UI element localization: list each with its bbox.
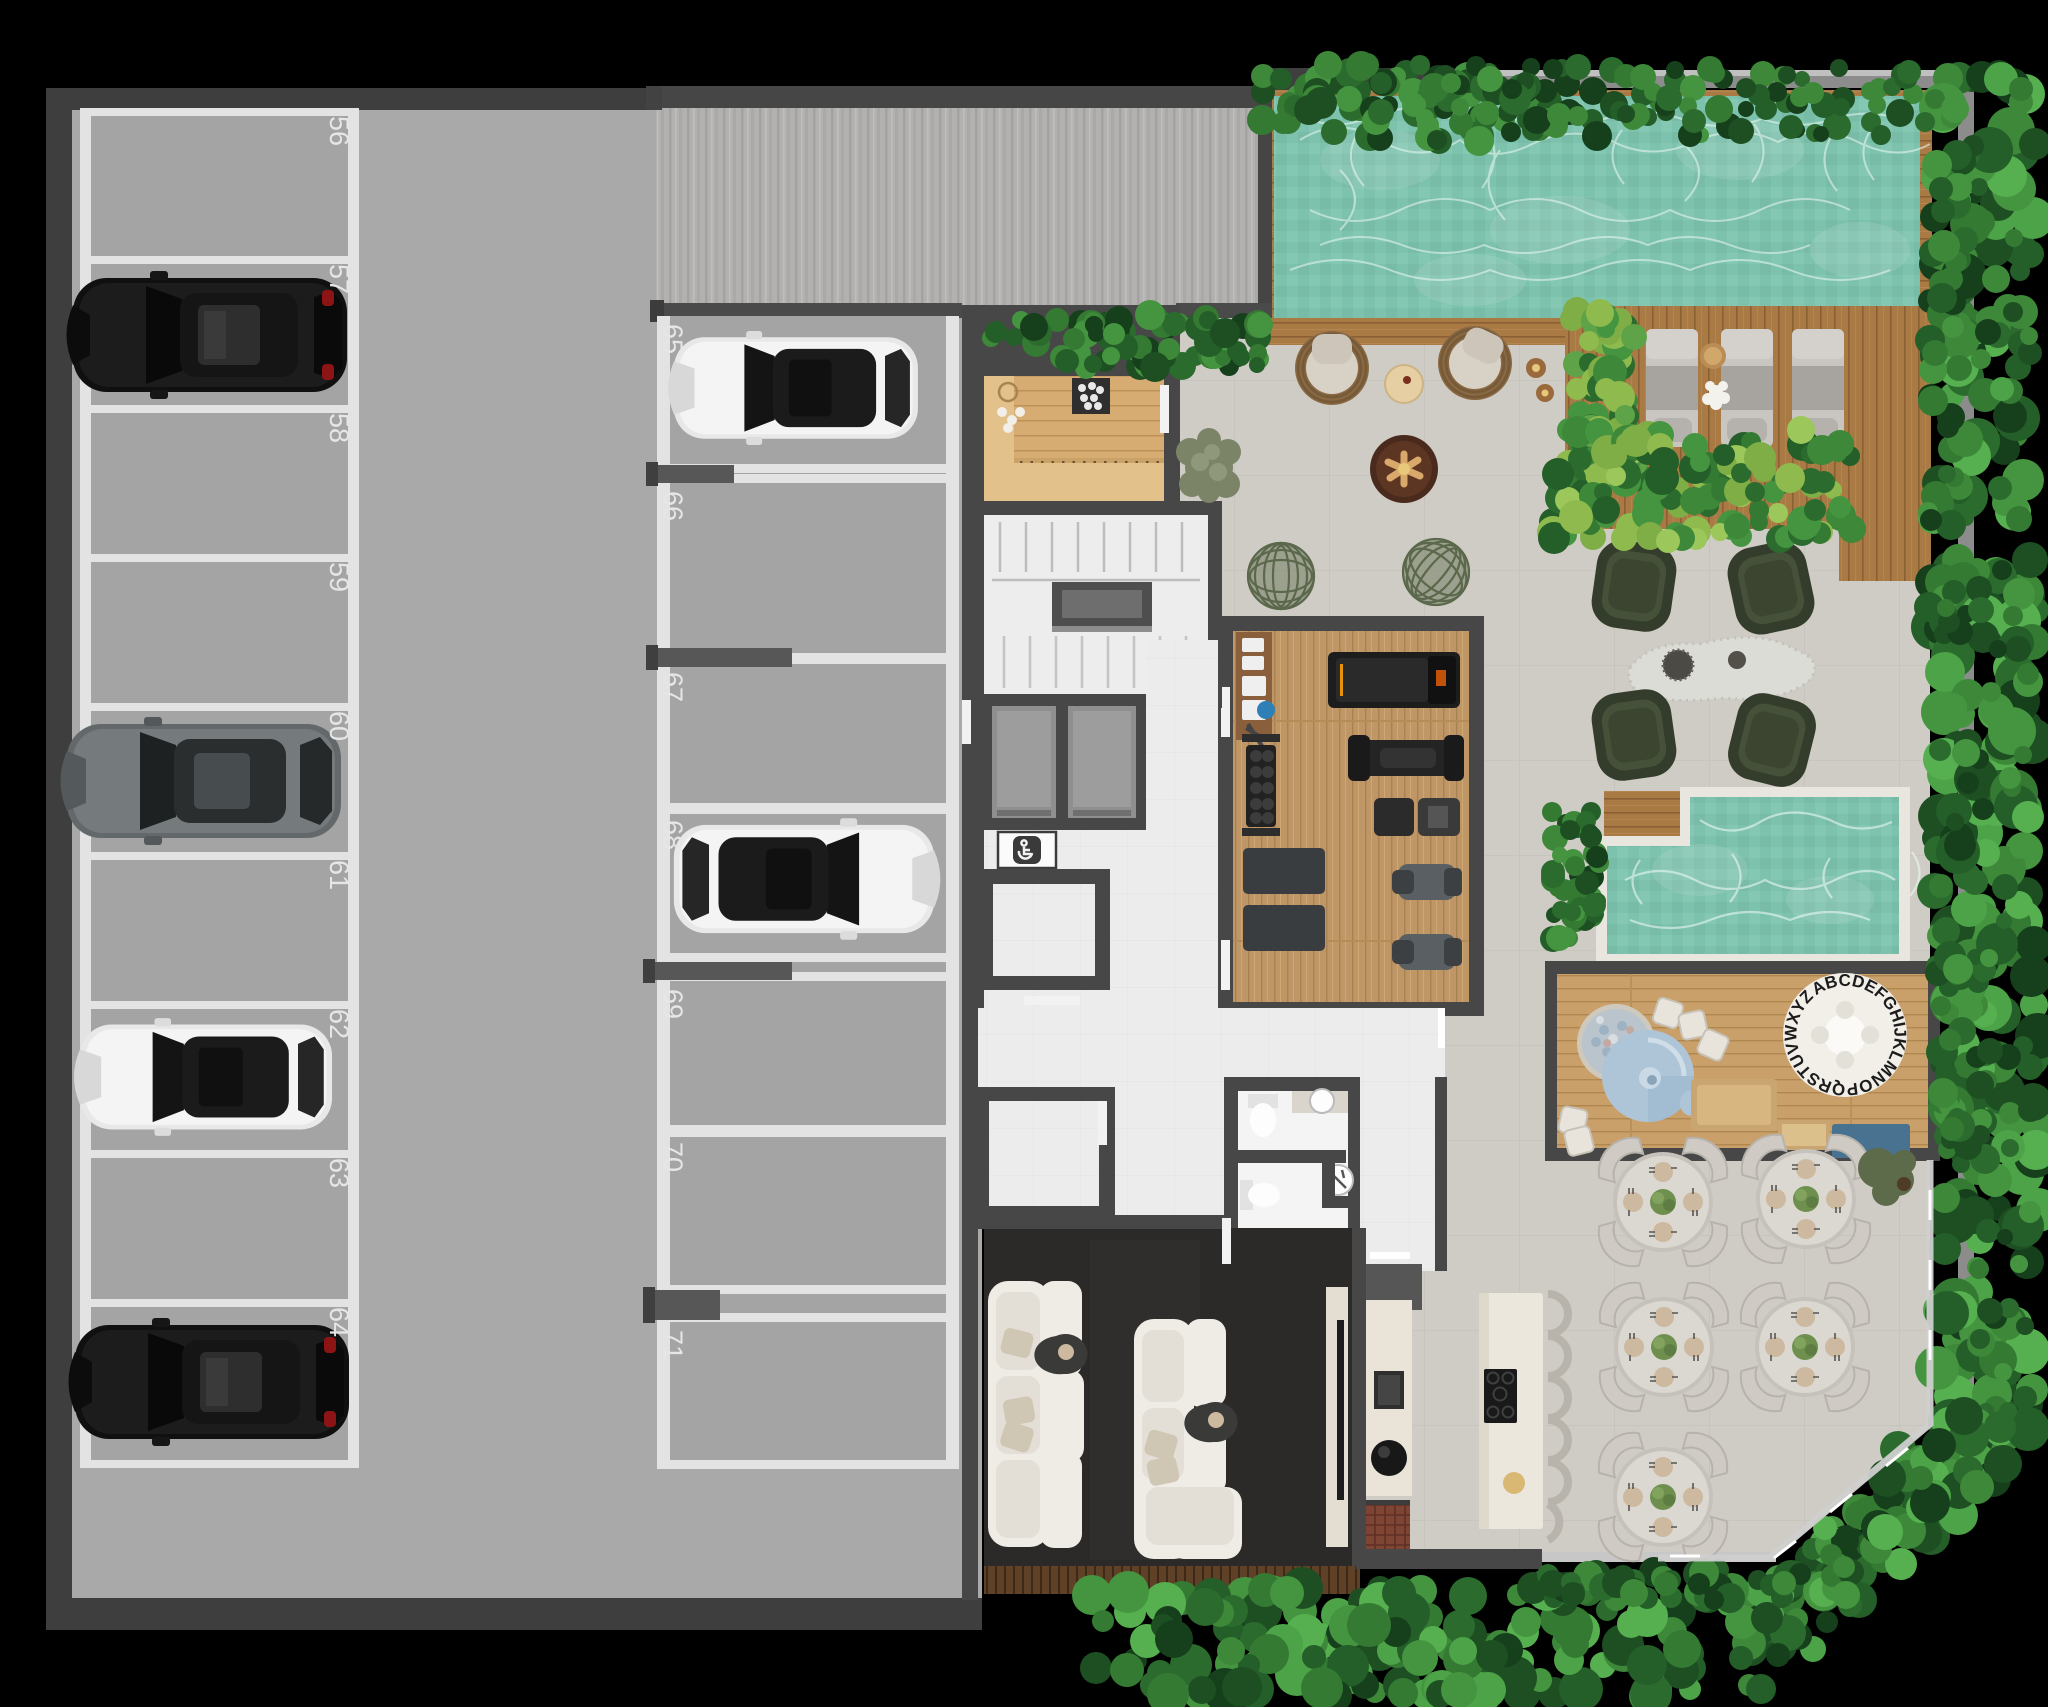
svg-text:60: 60 — [324, 711, 354, 741]
svg-text:57: 57 — [324, 264, 354, 294]
svg-text:66: 66 — [658, 491, 688, 521]
svg-text:64: 64 — [324, 1307, 354, 1337]
svg-text:59: 59 — [324, 562, 354, 592]
svg-text:69: 69 — [658, 989, 688, 1019]
svg-text:71: 71 — [658, 1330, 688, 1360]
svg-text:67: 67 — [658, 672, 688, 702]
svg-text:56: 56 — [324, 116, 354, 146]
svg-text:58: 58 — [324, 413, 354, 443]
svg-text:61: 61 — [324, 860, 354, 890]
svg-text:65: 65 — [658, 324, 688, 354]
svg-text:62: 62 — [324, 1009, 354, 1039]
svg-text:68: 68 — [658, 820, 688, 850]
svg-text:63: 63 — [324, 1158, 354, 1188]
svg-text:70: 70 — [658, 1142, 688, 1172]
